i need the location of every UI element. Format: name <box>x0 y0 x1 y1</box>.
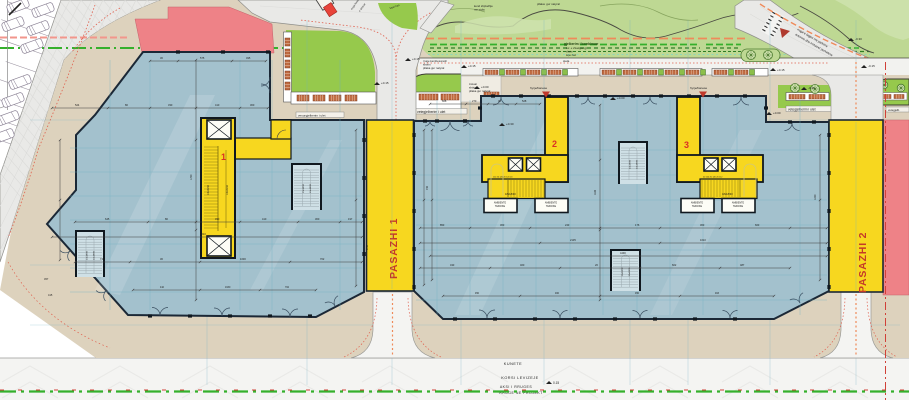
svg-text:stela: stela <box>563 59 570 63</box>
svg-text:13x18/30: 13x18/30 <box>310 183 312 193</box>
svg-text:460: 460 <box>555 292 560 295</box>
svg-text:1230: 1230 <box>814 194 817 200</box>
svg-text:18x18/30: 18x18/30 <box>505 192 516 196</box>
svg-text:+0.00: +0.00 <box>617 96 625 100</box>
svg-text:13x18/30: 13x18/30 <box>87 250 89 260</box>
svg-text:1180: 1180 <box>594 189 597 195</box>
svg-text:pllaka: gur natyral: pllaka: gur natyral <box>537 2 560 6</box>
svg-text:463: 463 <box>715 292 720 295</box>
svg-text:176: 176 <box>635 223 640 227</box>
svg-text:-0.30: -0.30 <box>855 37 862 41</box>
svg-text:lapei bari: lapei bari <box>566 54 577 57</box>
svg-text:+0.15: +0.15 <box>412 57 420 61</box>
svg-text:PASAZHI 2: PASAZHI 2 <box>857 232 869 293</box>
svg-text:20 120 20 120 20 112: 20 120 20 120 20 112 <box>703 177 723 179</box>
svg-text:TEKNIKE: TEKNIKE <box>546 205 557 208</box>
svg-text:433: 433 <box>450 263 455 267</box>
svg-text:+0.30: +0.30 <box>506 122 514 126</box>
svg-text:PASAZHI 1: PASAZHI 1 <box>388 218 400 279</box>
svg-text:+0.00: +0.00 <box>773 111 781 115</box>
svg-text:me stola: me stola <box>474 8 485 12</box>
svg-text:13x18/30: 13x18/30 <box>207 184 210 195</box>
svg-text:243: 243 <box>565 223 570 227</box>
svg-text:+0.15: +0.15 <box>777 68 785 72</box>
svg-text:410: 410 <box>262 217 267 221</box>
svg-text:13x18/30: 13x18/30 <box>637 159 639 169</box>
svg-text:18x18/30: 18x18/30 <box>722 192 733 196</box>
svg-text:1738: 1738 <box>367 244 369 250</box>
svg-text:1: 1 <box>221 152 226 162</box>
svg-text:460: 460 <box>520 263 525 267</box>
svg-text:TEKNIKE: TEKNIKE <box>733 205 744 208</box>
svg-text:702: 702 <box>285 286 290 289</box>
svg-text:330: 330 <box>215 217 220 221</box>
svg-text:+0.15: +0.15 <box>468 64 476 68</box>
svg-text:vetegjelb.: vetegjelb. <box>888 108 900 112</box>
svg-text:13x18/30: 13x18/30 <box>303 183 305 193</box>
svg-text:13x18/30: 13x18/30 <box>630 159 632 169</box>
svg-text:3610: 3610 <box>200 232 206 236</box>
svg-text:pllaka gur natyral: pllaka gur natyral <box>469 89 491 93</box>
svg-text:363: 363 <box>500 223 505 227</box>
svg-text:300: 300 <box>315 217 320 221</box>
svg-text:410: 410 <box>215 103 220 107</box>
svg-text:TEKNIKE: TEKNIKE <box>495 205 506 208</box>
svg-text:197: 197 <box>348 217 353 221</box>
svg-text:1630: 1630 <box>225 286 231 289</box>
svg-text:4490: 4490 <box>620 251 626 255</box>
svg-text:KUNETE: KUNETE <box>504 362 522 366</box>
svg-text:-0.15: -0.15 <box>868 64 875 68</box>
svg-text:112 20 120 20 120 20: 112 20 120 20 120 20 <box>493 177 513 179</box>
svg-text:2135: 2135 <box>570 238 576 242</box>
svg-text:TEKNIKE: TEKNIKE <box>692 205 703 208</box>
svg-text:645: 645 <box>105 217 110 221</box>
svg-text:495: 495 <box>246 56 251 60</box>
svg-text:528: 528 <box>522 99 527 103</box>
svg-text:0.15: 0.15 <box>553 381 559 385</box>
svg-text:+0.15: +0.15 <box>381 81 389 85</box>
svg-text:457: 457 <box>44 277 49 281</box>
svg-text:vesorgjelberim i ulet: vesorgjelberim i ulet <box>298 113 326 117</box>
svg-text:2: 2 <box>552 139 557 149</box>
svg-text:pllaka gur natyral: pllaka gur natyral <box>423 66 445 70</box>
svg-text:740: 740 <box>100 257 105 261</box>
svg-text:1730: 1730 <box>190 174 193 180</box>
svg-text:853: 853 <box>440 223 445 227</box>
svg-text:575: 575 <box>200 56 205 60</box>
svg-text:1630: 1630 <box>240 257 246 261</box>
svg-text:vetegjelberim i ulet: vetegjelberim i ulet <box>417 110 445 114</box>
svg-text:270: 270 <box>472 99 477 103</box>
svg-text:hyrje/banese: hyrje/banese <box>530 86 548 90</box>
svg-text:363: 363 <box>700 223 705 227</box>
svg-text:450: 450 <box>635 292 640 295</box>
svg-text:450: 450 <box>475 292 480 295</box>
svg-text:KORSI LEVIZEJE: KORSI LEVIZEJE <box>501 376 538 380</box>
svg-text:3: 3 <box>684 140 689 150</box>
svg-text:gjelberim i kombinuar: gjelberim i kombinuar <box>564 42 599 46</box>
svg-text:300: 300 <box>250 103 255 107</box>
svg-text:410: 410 <box>160 286 165 289</box>
svg-text:663: 663 <box>755 223 760 227</box>
svg-text:vetegjelberim i ulet: vetegjelberim i ulet <box>788 107 816 111</box>
svg-text:730: 730 <box>426 185 429 190</box>
svg-text:415: 415 <box>48 293 53 297</box>
svg-text:hyrje/banese: hyrje/banese <box>690 86 708 90</box>
svg-text:13x18/30: 13x18/30 <box>226 184 229 195</box>
svg-text:487: 487 <box>740 263 745 267</box>
svg-text:668: 668 <box>442 99 447 103</box>
svg-text:524: 524 <box>75 103 80 107</box>
svg-text:702: 702 <box>320 257 325 261</box>
svg-text:AKSI I RRUGES: AKSI I RRUGES <box>500 385 533 389</box>
svg-text:-0.30: -0.30 <box>808 86 815 90</box>
svg-text:13x18/30: 13x18/30 <box>94 250 96 260</box>
svg-text:330: 330 <box>168 103 173 107</box>
svg-text:602: 602 <box>672 263 677 267</box>
svg-text:1610: 1610 <box>700 238 706 242</box>
